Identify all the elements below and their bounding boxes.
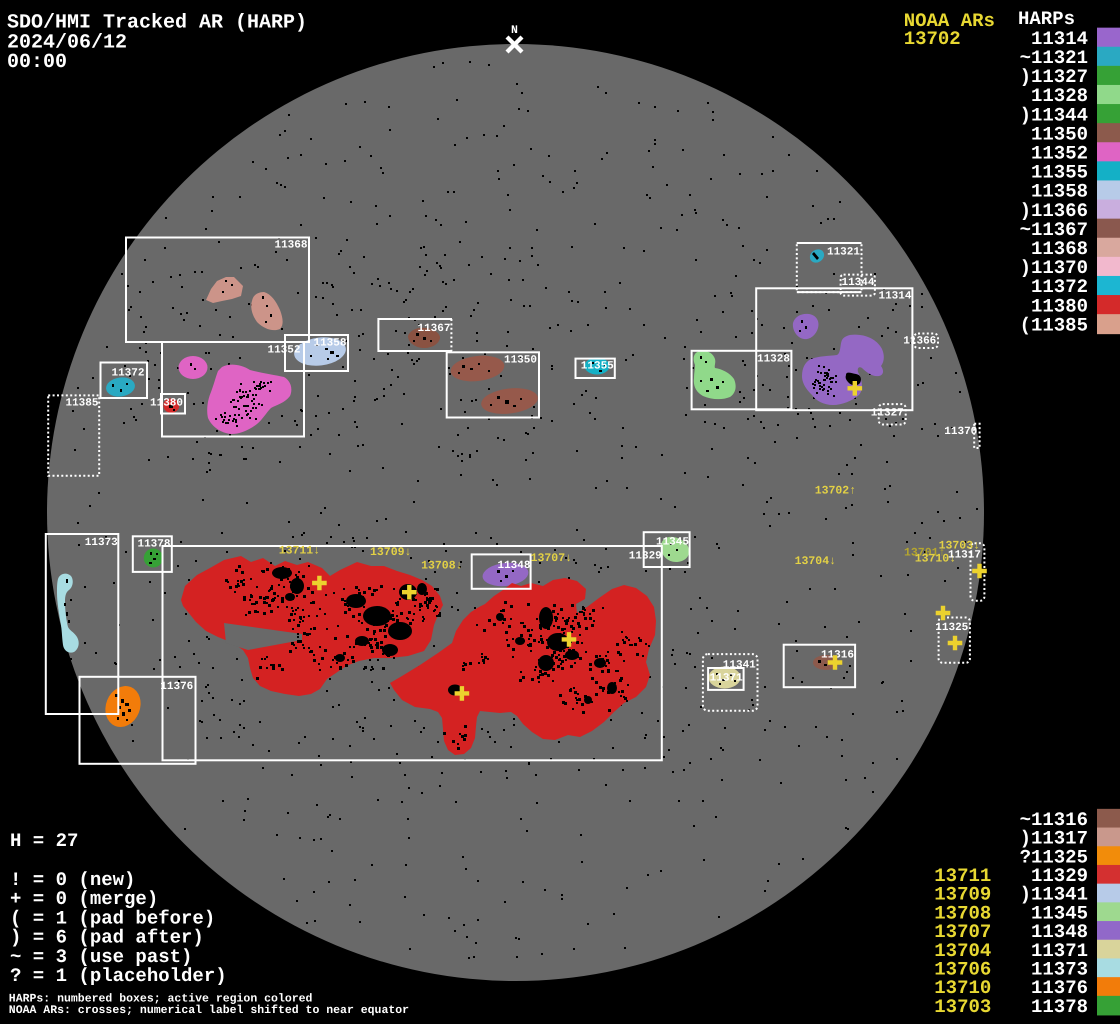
svg-text:11368: 11368 bbox=[274, 240, 307, 252]
svg-text:11380: 11380 bbox=[150, 398, 183, 410]
svg-text:11371: 11371 bbox=[710, 672, 743, 684]
svg-text:H = 27: H = 27 bbox=[10, 830, 78, 852]
svg-text:11367: 11367 bbox=[417, 323, 450, 335]
svg-text:11355: 11355 bbox=[581, 361, 614, 373]
svg-text:11317: 11317 bbox=[948, 550, 981, 562]
svg-text:11316: 11316 bbox=[821, 650, 854, 662]
svg-text:11341: 11341 bbox=[723, 659, 756, 671]
svg-text:? = 1 (placeholder): ? = 1 (placeholder) bbox=[10, 965, 227, 987]
svg-text:11329: 11329 bbox=[629, 550, 662, 562]
svg-text:NOAA ARs: crosses; numerical l: NOAA ARs: crosses; numerical label shift… bbox=[9, 1004, 409, 1017]
svg-text:13703: 13703 bbox=[934, 996, 991, 1018]
svg-text:11325: 11325 bbox=[935, 622, 968, 634]
svg-text:11366: 11366 bbox=[903, 336, 936, 348]
svg-text:11352: 11352 bbox=[267, 345, 300, 357]
svg-text:13704↓: 13704↓ bbox=[795, 555, 836, 568]
svg-text:13707↓: 13707↓ bbox=[531, 552, 572, 565]
svg-text:(11385: (11385 bbox=[1020, 314, 1088, 336]
svg-text:13708↓: 13708↓ bbox=[421, 560, 462, 573]
svg-text:11370: 11370 bbox=[944, 426, 977, 438]
svg-text:11350: 11350 bbox=[504, 354, 537, 366]
svg-text:11321: 11321 bbox=[827, 247, 860, 259]
svg-text:11376: 11376 bbox=[160, 681, 193, 693]
svg-text:11328: 11328 bbox=[757, 353, 790, 365]
svg-text:11314: 11314 bbox=[878, 291, 911, 303]
svg-text:13709↓: 13709↓ bbox=[370, 546, 411, 559]
svg-text:HARPs: HARPs bbox=[1018, 8, 1075, 30]
svg-text:11373: 11373 bbox=[85, 537, 118, 549]
svg-text:11358: 11358 bbox=[313, 337, 346, 349]
svg-text:N: N bbox=[511, 24, 518, 37]
svg-text:13711↓: 13711↓ bbox=[279, 545, 320, 558]
svg-text:13702↑: 13702↑ bbox=[815, 485, 856, 498]
svg-text:11378: 11378 bbox=[1031, 996, 1088, 1018]
svg-text:00:00: 00:00 bbox=[7, 51, 67, 74]
svg-text:11345: 11345 bbox=[656, 537, 689, 549]
svg-text:11327: 11327 bbox=[871, 408, 904, 420]
svg-text:11372: 11372 bbox=[111, 368, 144, 380]
svg-text:11378: 11378 bbox=[137, 538, 170, 550]
svg-text:13702: 13702 bbox=[904, 28, 961, 50]
svg-text:11385: 11385 bbox=[65, 398, 98, 410]
svg-text:11348: 11348 bbox=[497, 560, 530, 572]
